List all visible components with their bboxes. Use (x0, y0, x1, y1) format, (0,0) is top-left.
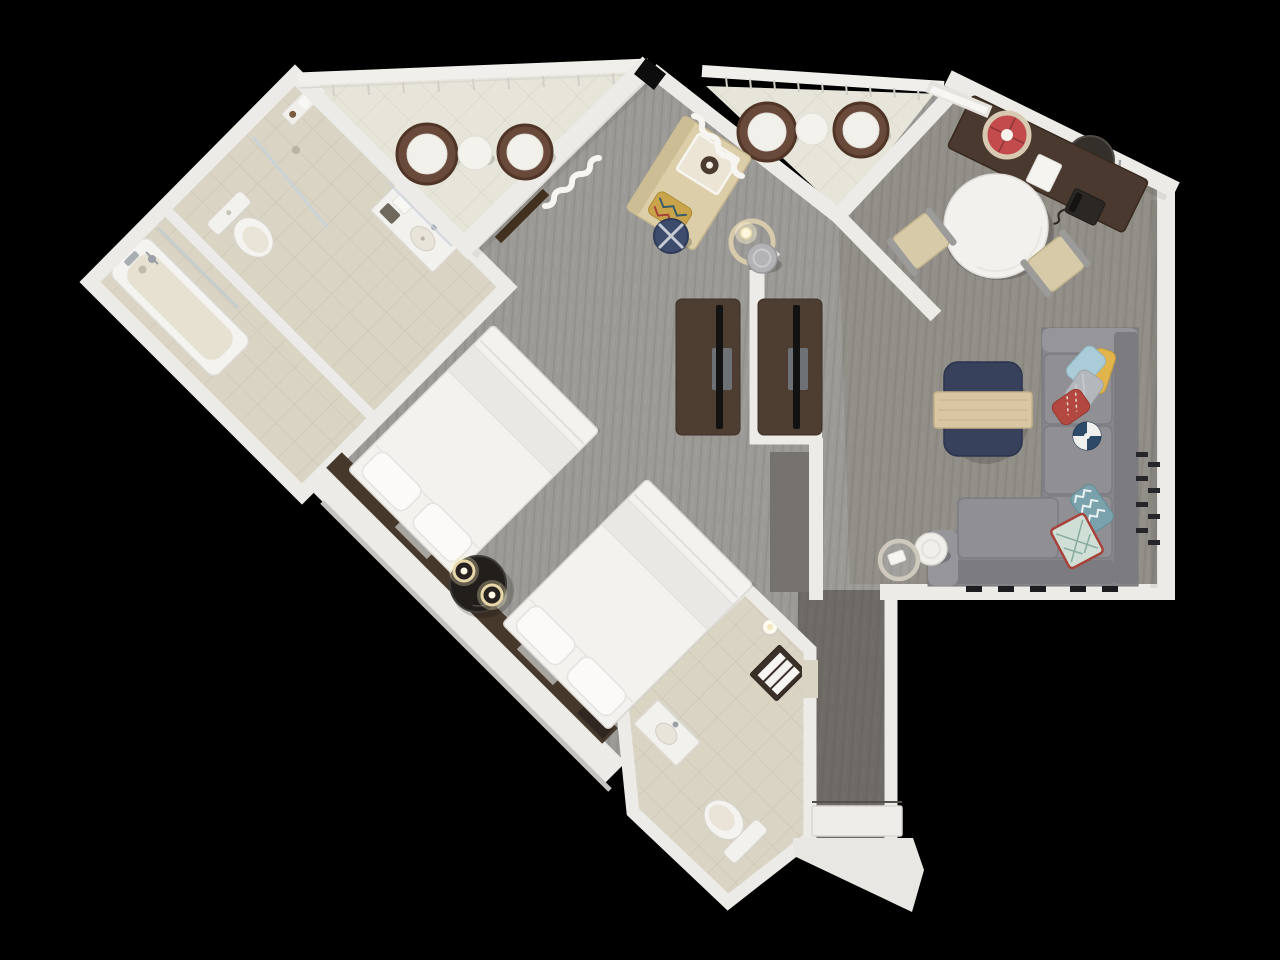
floor-plan-shapes (0, 0, 1280, 960)
balcony-left-chair-1-cushion (407, 134, 447, 174)
entry-side-table (747, 243, 777, 273)
tv-screen-right (793, 305, 800, 429)
floor-plan-image (0, 0, 1280, 960)
floor-closet-niche (770, 452, 814, 592)
balcony-left-chair-2-cushion (507, 134, 543, 170)
balcony-right-chair-2-cushion (843, 112, 879, 148)
sofa-back-right (1114, 332, 1138, 584)
floor-plan-figure (0, 0, 1280, 960)
sofa-chaise-cushion (958, 498, 1058, 558)
shower-drain-wing (292, 146, 300, 154)
arc-floor-lamp-bulb (741, 228, 752, 239)
bath-lower-door-gap (802, 660, 818, 698)
page (0, 0, 1280, 960)
balcony-left-table (458, 136, 492, 170)
lamp-core-2 (489, 592, 496, 599)
pillow-ball-center (1084, 433, 1090, 439)
wall-sconce-bulb (767, 624, 773, 630)
lamp-core-1 (461, 568, 468, 575)
balcony-right-table (796, 113, 828, 145)
shower-head (148, 255, 156, 263)
tv-screen-left (716, 305, 723, 429)
balcony-right-chair-1-cushion (748, 113, 786, 151)
entry-door-leaf (812, 806, 902, 836)
desk-lamp-bulb (1001, 129, 1013, 141)
